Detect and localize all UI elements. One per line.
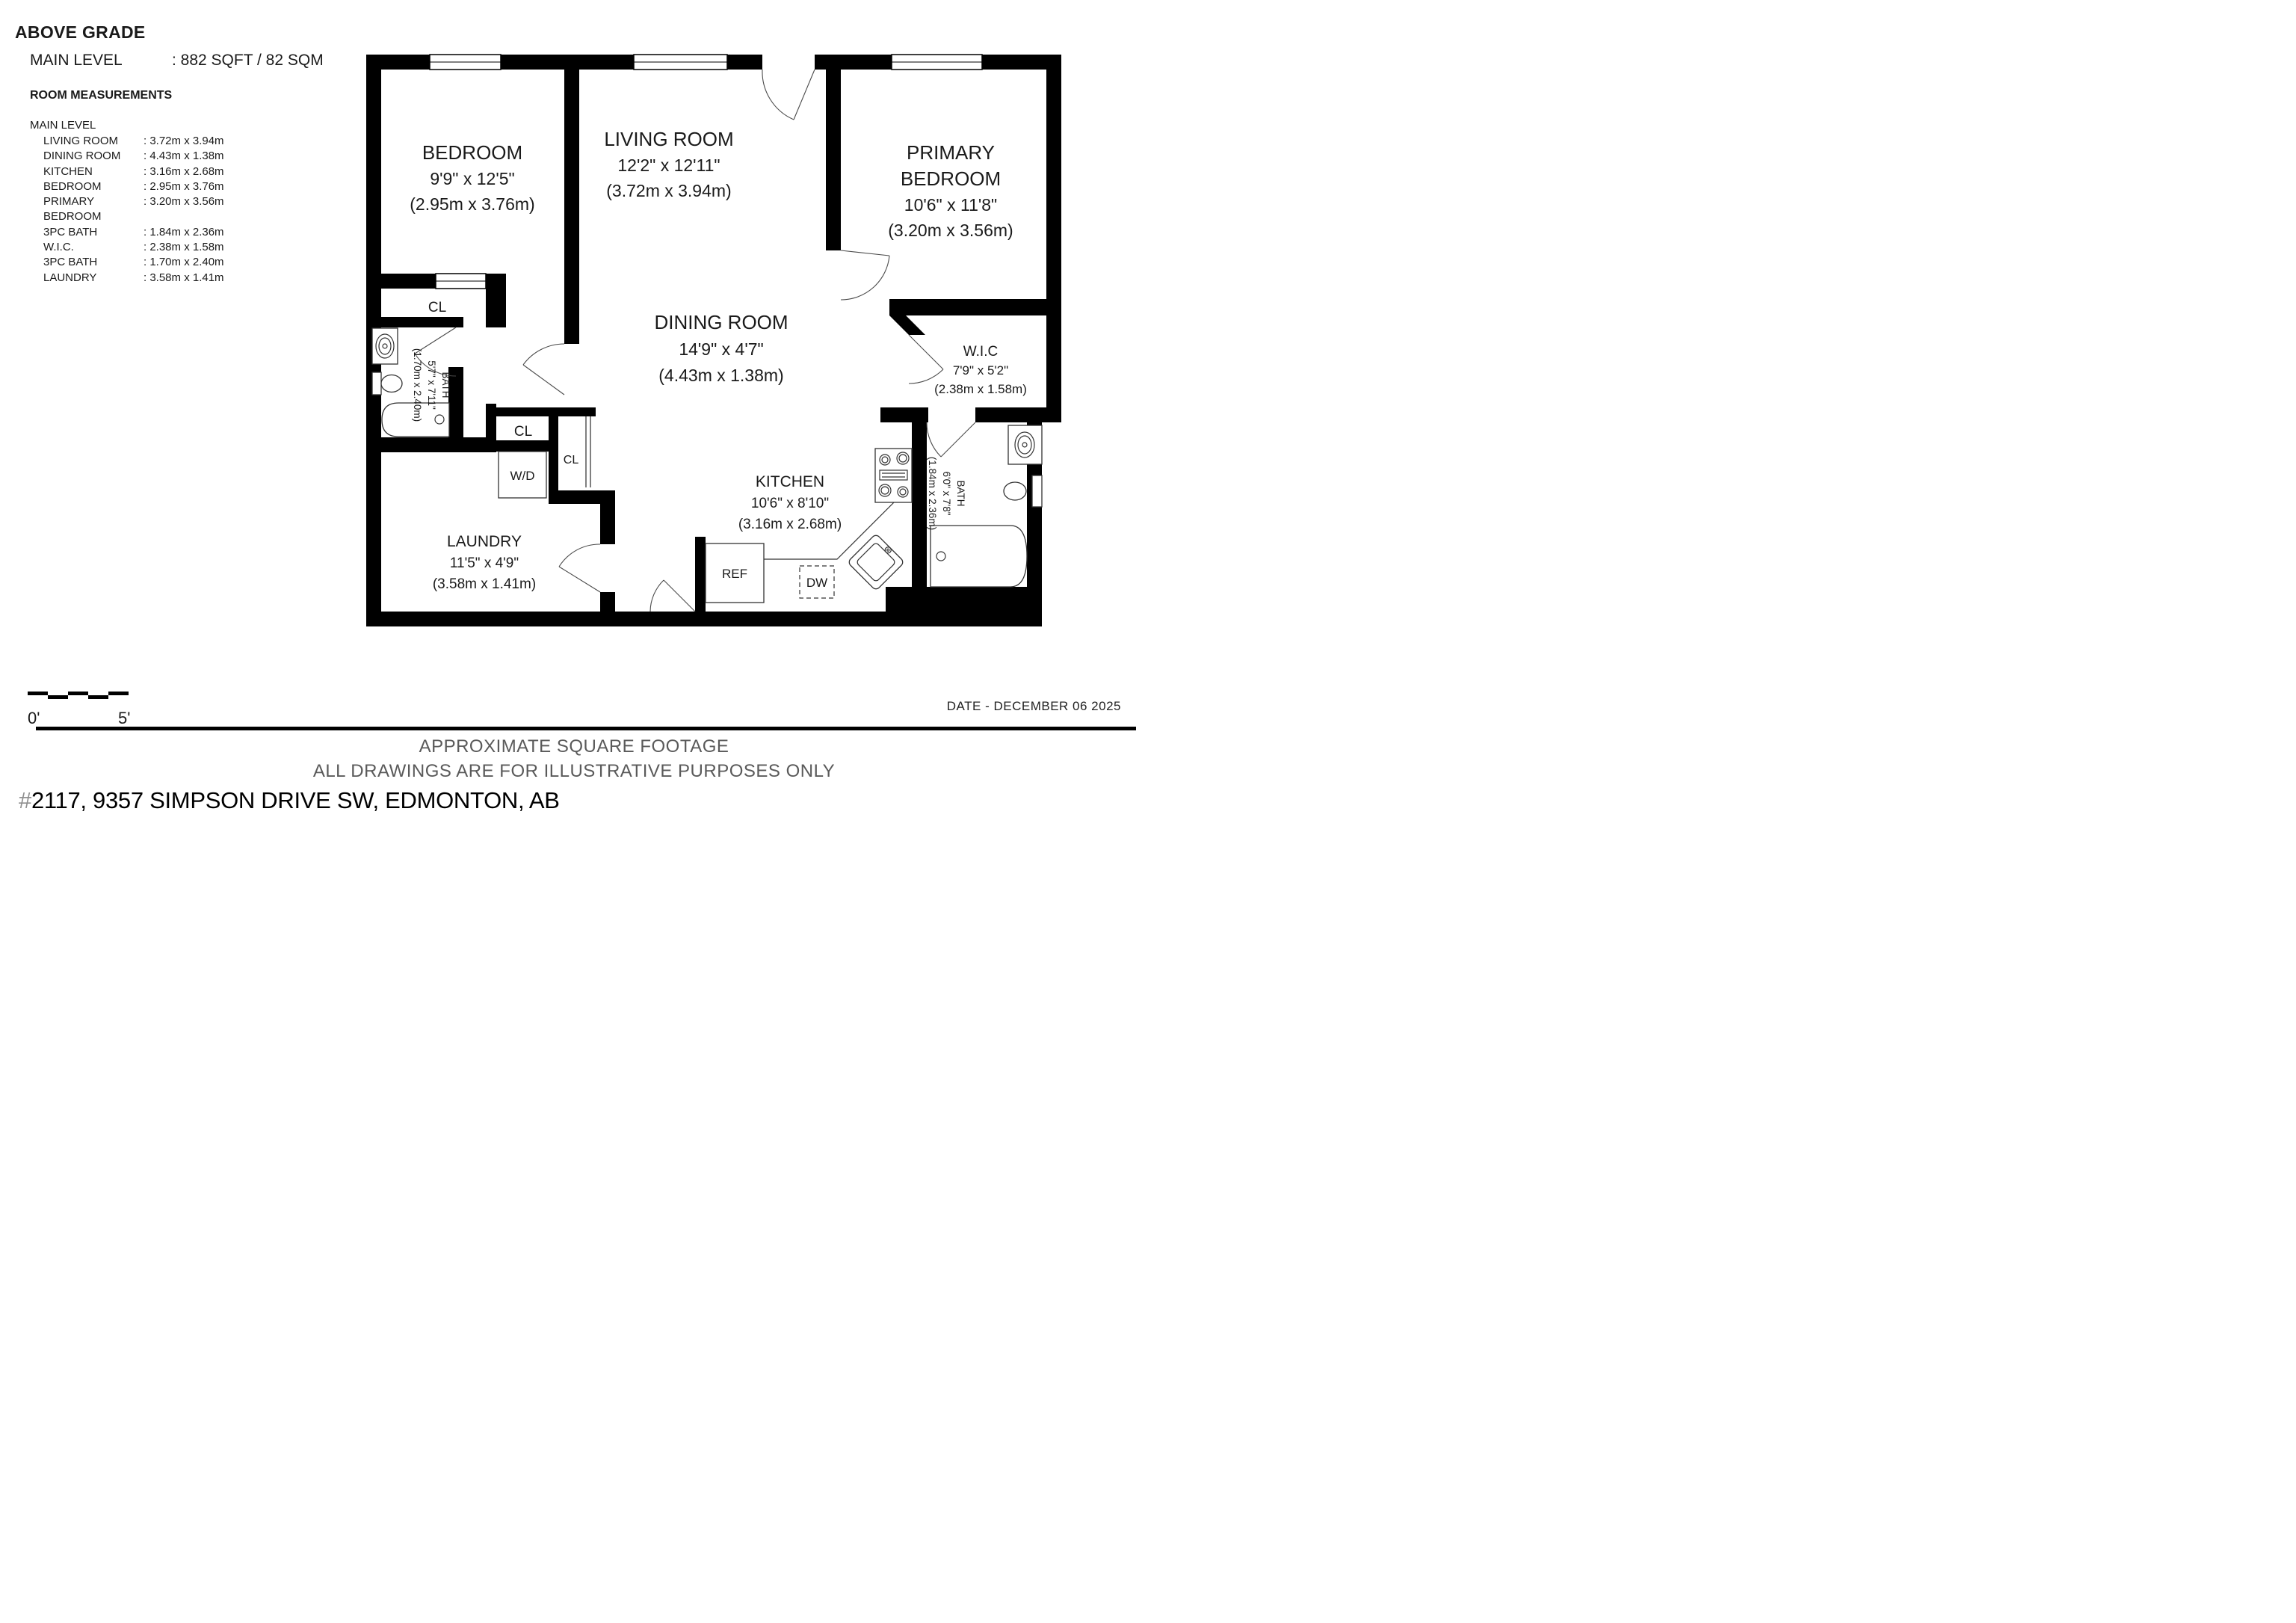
room-dims-ft: 10'6" x 11'8" [904,195,997,215]
room-dims-m: (3.20m x 3.56m) [888,221,1013,240]
room-label: W.I.C [963,344,998,360]
floorplan-page: ABOVE GRADE MAIN LEVEL : 882 SQFT / 82 S… [0,0,1148,812]
room-kitchen: KITCHEN 10'6" x 8'10" (3.16m x 2.68m) [738,473,842,532]
room-label: LIVING ROOM [604,128,733,150]
bedroom-door [523,344,564,395]
address-text: 2117, 9357 SIMPSON DRIVE SW, EDMONTON, A… [31,787,560,812]
room-dining: DINING ROOM 14'9" x 4'7" (4.43m x 1.38m) [654,311,788,385]
dishwasher-label: DW [806,576,827,590]
room-label: BATH [440,372,451,398]
date-label: DATE - DECEMBER 06 2025 [0,699,1121,714]
closet-door [436,274,486,289]
room-dims-ft: 9'9" x 12'5" [430,169,514,188]
address-hash: # [19,787,31,812]
window [634,55,727,70]
window [430,55,501,70]
room-dims-ft: 10'6" x 8'10" [751,496,829,511]
primary-bedroom-door [841,250,889,300]
laundry-door [559,544,600,592]
room-wic: W.I.C 7'9" x 5'2" (2.38m x 1.58m) [934,344,1027,396]
stove-icon [875,449,912,502]
window [892,55,982,70]
corner-sink-icon [848,534,904,591]
room-dims-m: (3.72m x 3.94m) [606,181,731,200]
bathtub-icon [931,526,1027,587]
sink-icon [372,328,398,364]
closet-label: CL [564,454,579,466]
room-bath-right: BATH 6'0" x 7'8" (1.84m x 2.36m) [927,457,966,530]
sink-icon [1008,425,1042,464]
room-dims-m: (1.70m x 2.40m) [412,348,423,422]
windows [430,55,982,487]
room-bedroom: BEDROOM 9'9" x 12'5" (2.95m x 3.76m) [410,141,534,214]
address: #2117, 9357 SIMPSON DRIVE SW, EDMONTON, … [19,787,560,812]
room-living: LIVING ROOM 12'2" x 12'11" (3.72m x 3.94… [604,128,733,200]
room-dims-ft: 7'9" x 5'2" [953,363,1008,378]
room-dims-m: (1.84m x 2.36m) [927,457,938,530]
footer-line2: ALL DRAWINGS ARE FOR ILLUSTRATIVE PURPOS… [0,761,1148,782]
room-dims-ft: 11'5" x 4'9" [450,555,519,571]
closet-label: CL [428,300,446,315]
room-label: KITCHEN [756,473,824,490]
room-label: LAUNDRY [447,533,522,550]
closet-door [586,416,590,487]
room-dims-m: (3.58m x 1.41m) [433,576,536,592]
hall-door [650,580,695,612]
room-label: BEDROOM [422,141,522,164]
closet-label: CL [514,424,532,440]
room-dims-ft: 6'0" x 7'8" [941,471,952,515]
footer-line1: APPROXIMATE SQUARE FOOTAGE [0,736,1148,757]
fridge-label: REF [722,567,747,581]
washer-dryer-label: W/D [510,469,534,483]
room-dims-ft: 14'9" x 4'7" [679,339,763,359]
bath-right-door [927,422,975,457]
floor-plan: BEDROOM 9'9" x 12'5" (2.95m x 3.76m) LIV… [0,0,1148,812]
wic-door [909,335,943,384]
toilet-icon [372,372,402,395]
room-label: DINING ROOM [654,311,788,333]
room-dims-m: (3.16m x 2.68m) [738,517,842,532]
kitchen-fixtures [499,449,912,603]
divider-rule [36,727,1136,730]
room-label: PRIMARY [907,141,995,164]
room-dims-ft: 12'2" x 12'11" [617,155,720,175]
entry-door [762,70,815,120]
room-dims-m: (4.43m x 1.38m) [658,366,783,385]
room-label: BEDROOM [901,167,1001,190]
room-dims-ft: 5'7" x 7'11" [426,360,437,410]
room-dims-m: (2.95m x 3.76m) [410,194,534,214]
room-label: BATH [955,480,966,506]
room-dims-m: (2.38m x 1.58m) [934,382,1027,396]
room-laundry: LAUNDRY 11'5" x 4'9" (3.58m x 1.41m) [433,533,536,592]
toilet-icon [1004,475,1042,507]
room-primary-bedroom: PRIMARY BEDROOM 10'6" x 11'8" (3.20m x 3… [888,141,1013,240]
